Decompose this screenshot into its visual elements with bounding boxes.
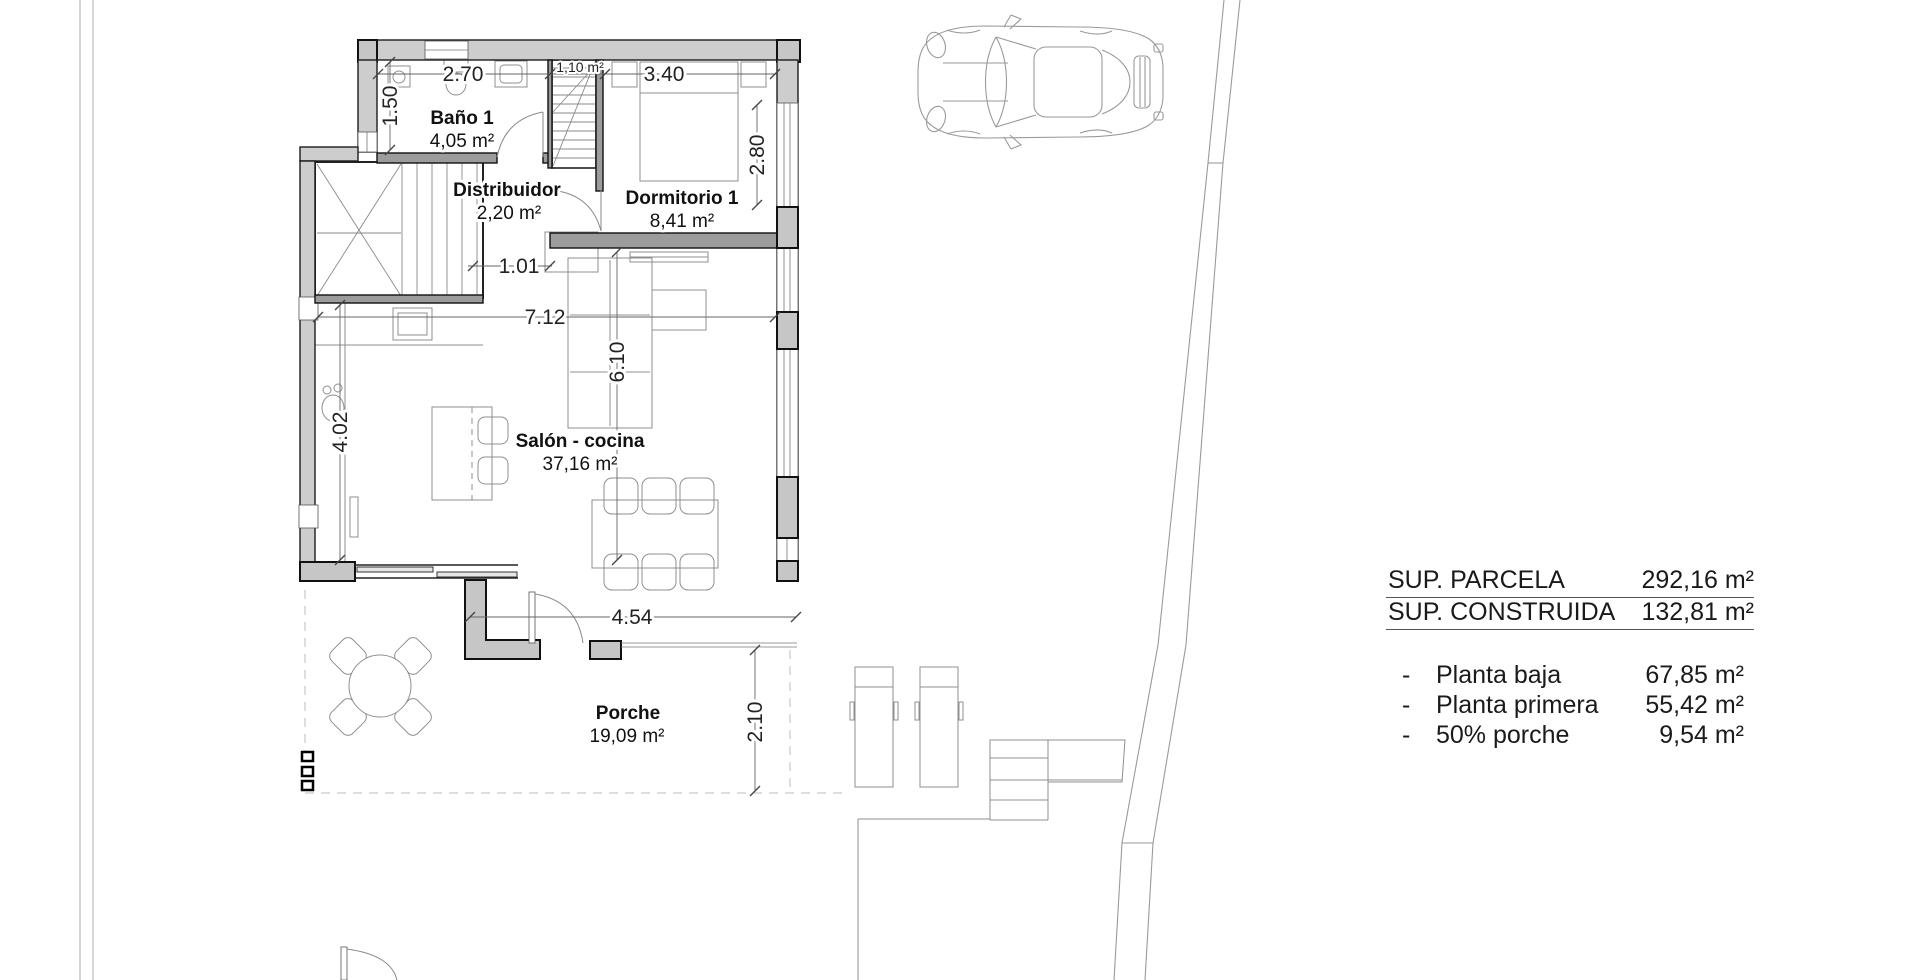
dim-porche-width: 4.54 [612,606,653,629]
car-topview [918,15,1163,149]
window-salon-2 [777,349,798,477]
summary-item-planta-baja: - Planta baja 67,85 m² [1386,661,1754,691]
floor-plan-walls [299,40,800,659]
summary-value-construida: 132,81 m² [1641,598,1754,627]
bath-sink [388,66,410,87]
summary-spacer [1386,630,1754,661]
car-windshield [986,37,997,127]
wall-bathroom [377,153,497,163]
page-margin-lines [80,0,93,980]
wall-stair-bottom [315,295,483,303]
garden-gate-door [341,947,397,980]
plot-boundary [1114,0,1240,980]
car-headlight-right [923,104,948,134]
sun-lounger [915,667,963,787]
summary-item-value: 55,42 m² [1645,691,1744,720]
room-area-distribuidor: 2,20 m² [477,203,541,224]
island-chair [478,417,508,444]
dim-bano-depth: 1.50 [379,86,402,127]
bedroom-furniture [612,62,766,181]
porch-posts [302,752,313,790]
window-salon-1 [777,248,798,312]
porch-table-set [327,635,434,738]
dim-porche-depth: 2.10 [744,702,767,743]
kitchen-island [432,407,492,500]
porch-pillar [590,641,621,659]
dim-salon-width: 7.12 [525,306,566,329]
wall-left [300,161,315,562]
room-area-bano: 4,05 m² [430,131,494,152]
summary-row-parcela: SUP. PARCELA 292,16 m² [1386,566,1754,598]
wall-bedroom-left [596,60,603,191]
window-left-lower [299,505,318,528]
bullet-dash: - [1386,661,1436,690]
summary-row-construida: SUP. CONSTRUIDA 132,81 m² [1386,598,1754,630]
radiator [350,497,358,537]
floorplan-drawing: 2.70 1.50 3.40 2.80 1.01 7.12 4.02 6.10 … [0,0,1920,980]
sun-lounger [850,667,898,787]
room-label-distribuidor: Distribuidor [453,180,561,201]
bullet-dash: - [1386,721,1436,750]
dim-salon-left-depth: 4.02 [329,412,352,453]
nightstand [612,62,637,87]
nightstand [741,62,766,87]
kitchen-sink [323,386,331,394]
sun-loungers [850,667,963,787]
room-area-porche: 19,09 m² [590,726,665,747]
car-rear-window [1102,50,1130,114]
room-label-porche: Porche [596,703,660,724]
summary-item-planta-primera: - Planta primera 55,42 m² [1386,691,1754,721]
garden-steps [990,740,1125,820]
summary-value-parcela: 292,16 m² [1641,566,1754,595]
porch-round-table [349,655,411,717]
room-area-salon: 37,16 m² [543,454,618,475]
sofa-chaise [652,290,706,330]
summary-label-parcela: SUP. PARCELA [1388,566,1565,595]
dim-stair-opening: 1.01 [499,255,540,278]
car-engine-grille [1134,56,1150,108]
dim-bano-width: 2.70 [443,63,484,86]
room-area-escalera: 1,10 m² [556,59,604,75]
summary-item-porche: - 50% porche 9,54 m² [1386,721,1754,751]
summary-item-label: 50% porche [1436,721,1659,750]
island-chair [478,457,508,484]
window-bedroom [777,103,798,207]
stair-shaft [552,60,596,168]
car-roof [1034,47,1102,117]
room-label-dormitorio: Dormitorio 1 [626,188,739,209]
summary-item-value: 9,54 m² [1659,721,1744,750]
floorplan-sheet: 2.70 1.50 3.40 2.80 1.01 7.12 4.02 6.10 … [0,0,1920,980]
summary-label-construida: SUP. CONSTRUIDA [1388,598,1615,627]
dining-table [592,500,718,568]
car-body-outline [918,26,1163,138]
room-area-dormitorio: 8,41 m² [650,211,714,232]
summary-item-label: Planta primera [1436,691,1645,720]
summary-item-value: 67,85 m² [1645,661,1744,690]
living-kitchen-furniture [315,232,718,590]
dim-dormitorio-depth: 2.80 [746,135,769,176]
room-label-salon: Salón - cocina [516,431,645,452]
wall-bedroom-bottom [550,233,777,248]
dim-dormitorio-width: 3.40 [644,63,685,86]
window-left-upper [358,132,377,152]
garden-path-edge [858,819,990,980]
bullet-dash: - [1386,691,1436,720]
porch-door [529,592,535,643]
area-summary-table: SUP. PARCELA 292,16 m² SUP. CONSTRUIDA 1… [1386,566,1754,751]
car-headlight-left [923,30,948,60]
wall-corner-bottom-left [300,562,355,581]
summary-item-label: Planta baja [1436,661,1645,690]
dim-salon-right-depth: 6.10 [606,342,629,383]
room-label-bano: Baño 1 [430,108,494,129]
wall-top [358,40,800,60]
